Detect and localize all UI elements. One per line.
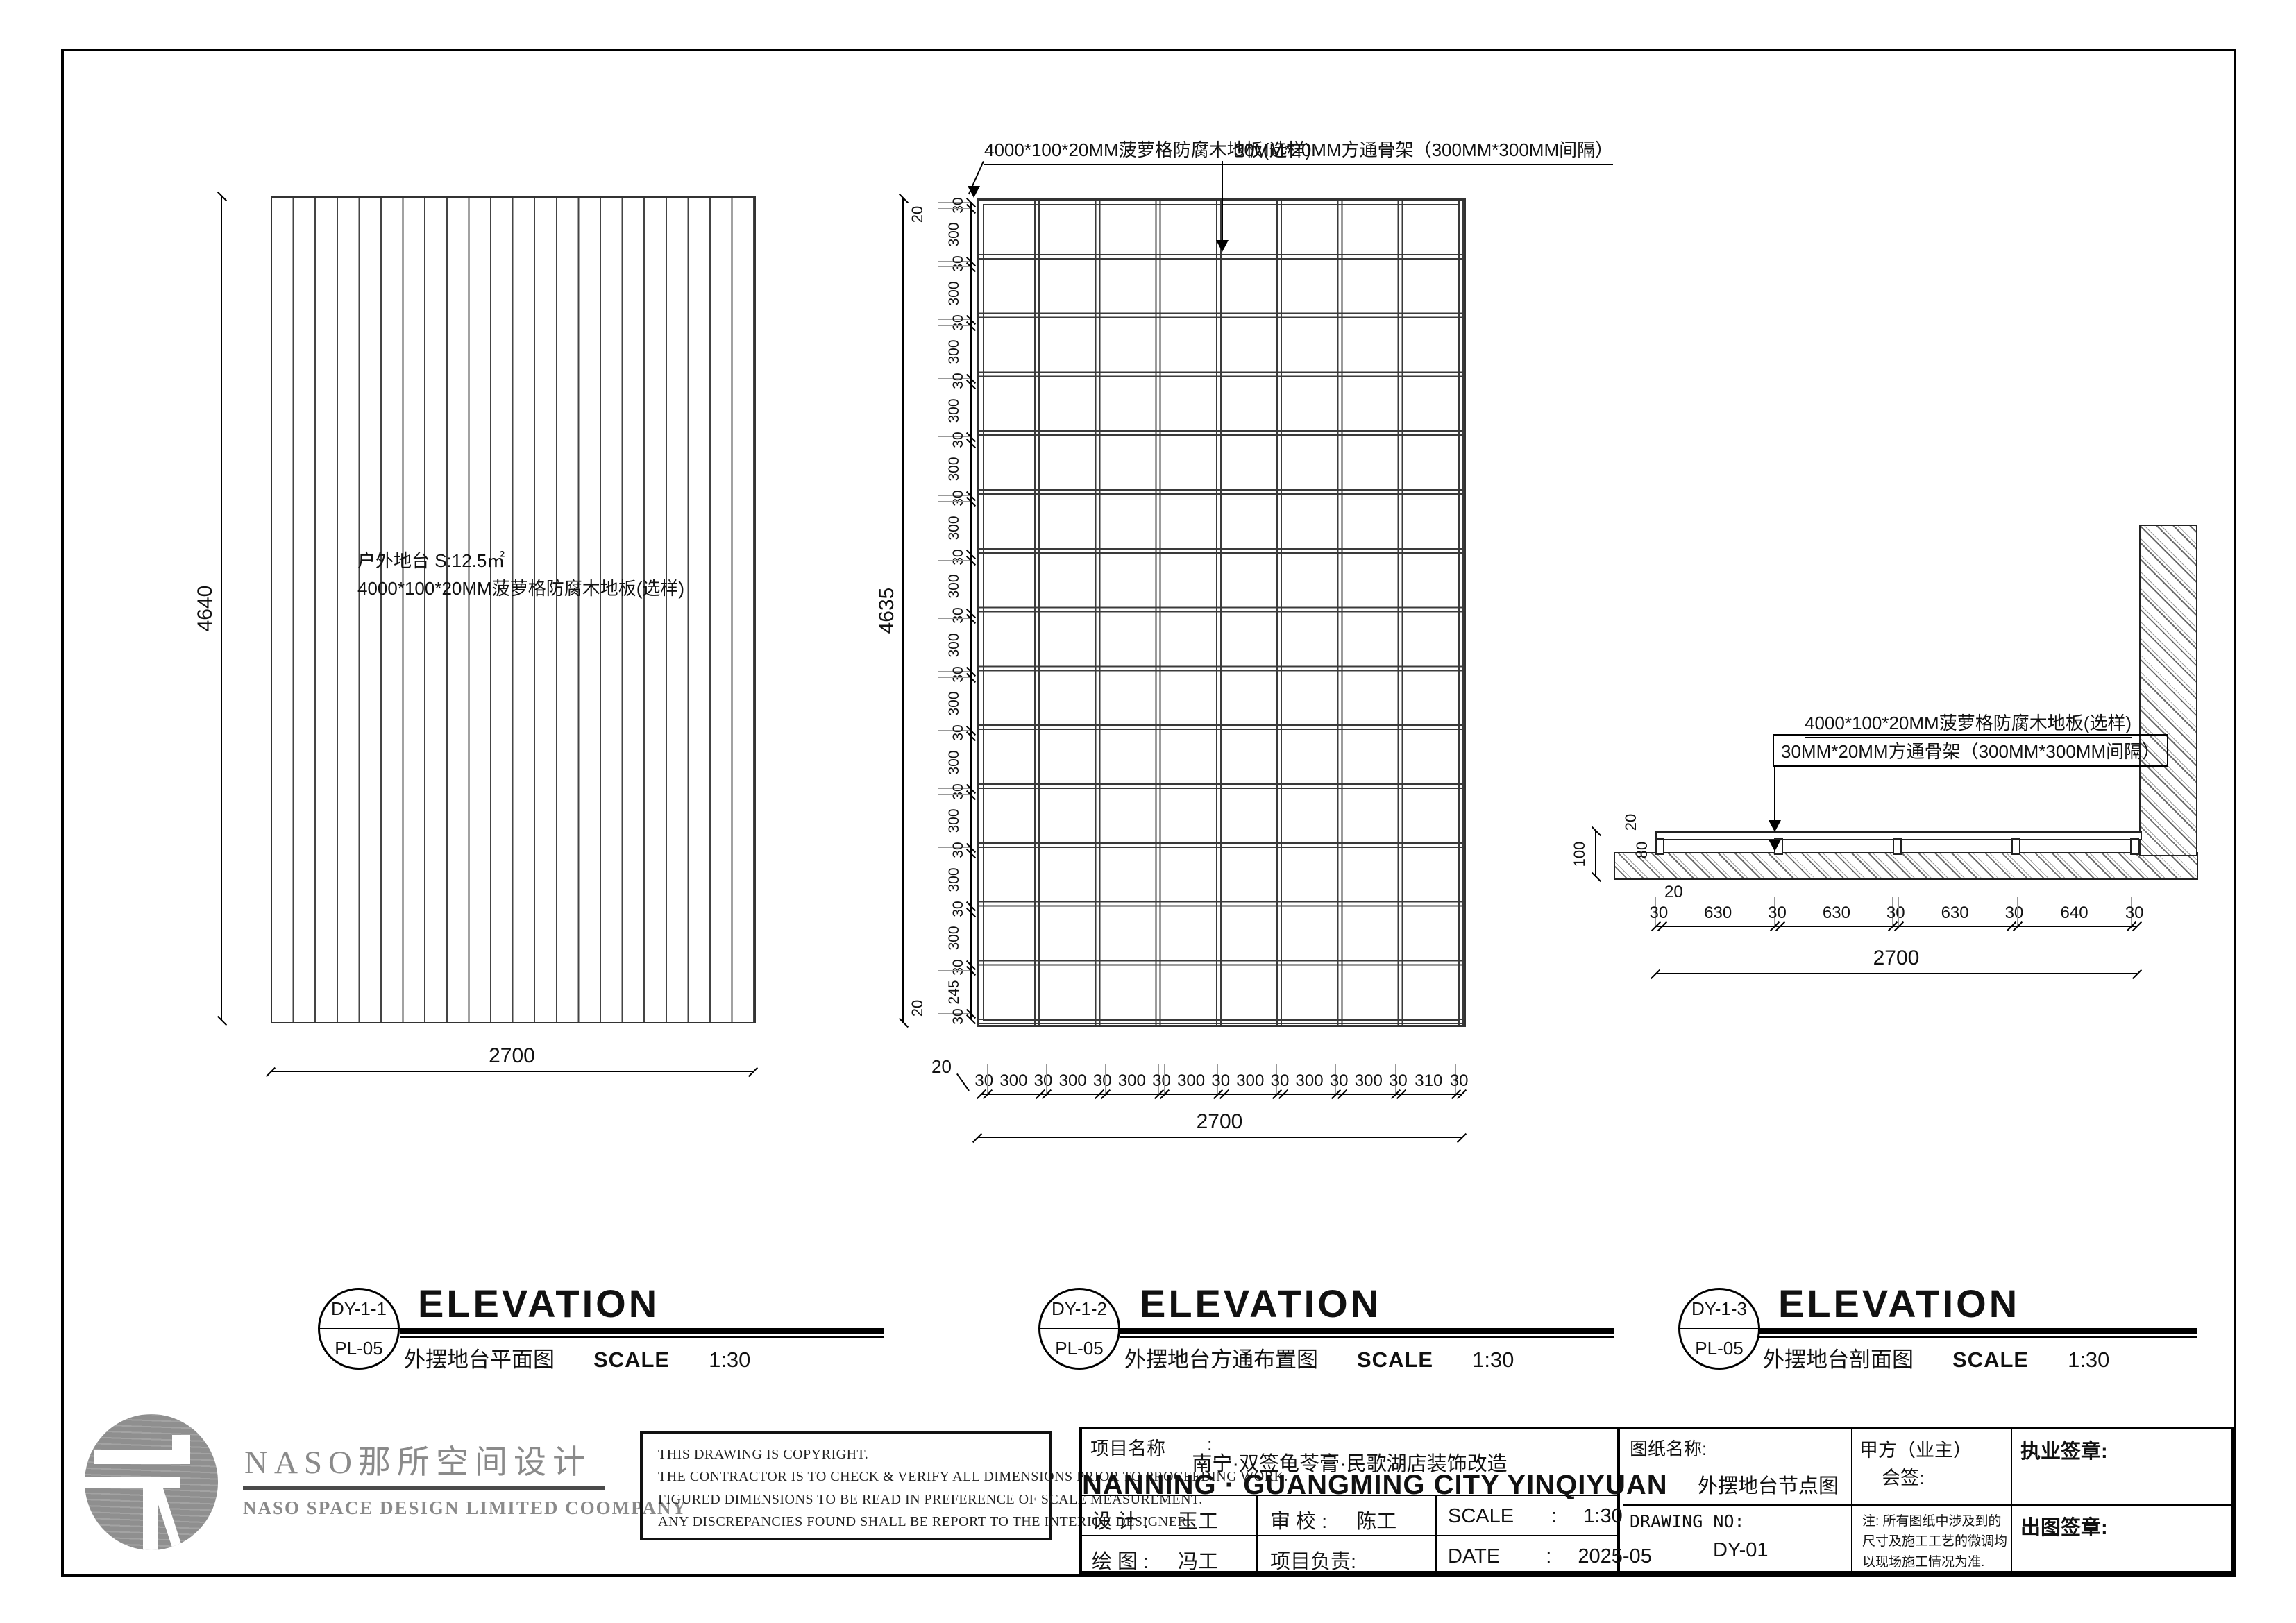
dim-segment: 30 [1276,1064,1283,1094]
dim-segment: 30 [2011,897,2017,926]
copyright-line: THIS DRAWING IS COPYRIGHT. [658,1443,1049,1465]
tube-left-dim-chain: 3030030300303003030030300303003030030300… [938,202,972,1019]
tube-width-dim-label: 2700 [1197,1110,1243,1134]
scale-label: SCALE [1448,1505,1514,1527]
date-colon: : [1546,1545,1551,1567]
sheet-title-value: 外摆地台节点图 [1698,1470,1839,1499]
view3-scale-value: 1:30 [2068,1348,2109,1373]
issue-seal-cell: 出图签章: [2012,1506,2231,1577]
dim-segment: 300 [938,501,970,554]
dim-segment: 300 [1224,1064,1277,1094]
dim-segment: 30 [2131,897,2137,926]
section-slab-hatch [1614,852,2198,880]
drawing-sheet: 户外地台 S:12.5㎡ 4000*100*20MM菠萝格防腐木地板(选样) 4… [0,0,2296,1623]
callout-frame-leader-line [1222,161,1223,241]
dim-segment: 245 [938,970,970,1013]
plan-height-dim: 4640 [221,196,222,1021]
designer-label: 设 计 : [1092,1511,1149,1533]
note-line: 注: 所有图纸中涉及到的 [1862,1511,2011,1531]
view3-title-rule2 [1759,1336,2197,1338]
tube-grid-field [977,198,1466,1027]
dim-segment: 30 [1455,1064,1462,1094]
dim-segment: 300 [938,208,970,261]
view3-title: ELEVATION [1778,1281,2020,1326]
view2-sheet-no: PL-05 [1040,1329,1118,1368]
tube-edge-left-dim: 20 [931,1056,952,1078]
view1-ref-bubble: DY-1-1 PL-05 [318,1288,400,1370]
tube-edge-top-dim: 20 [909,206,927,223]
dim-segment: 300 [938,794,970,847]
section-callout-frame: 30MM*20MM方通骨架（300MM*300MM间隔） [1773,734,2168,767]
tube-grid-inner-border [983,204,1460,1021]
dim-segment: 300 [938,325,970,378]
dim-segment: 30 [1040,1064,1046,1094]
view1-ref: DY-1-1 [320,1290,398,1329]
draftsman-label: 绘 图 : [1092,1551,1149,1573]
plan-width-dim-label: 2700 [489,1044,535,1068]
section-board-thickness-dim: 20 [1622,814,1640,831]
section-bottom-dim-chain: 3063030630306303064030 [1655,897,2137,927]
dim-segment: 300 [938,560,970,613]
view1-title: ELEVATION [418,1281,659,1326]
view2-title-rule2 [1120,1336,1614,1338]
section-tube [1655,838,1664,855]
view3-ref-bubble: DY-1-3 PL-05 [1678,1288,1760,1370]
section-wall-hatch [2139,525,2197,856]
callout-floor-arrow-icon [968,186,980,198]
plan-height-dim-label: 4640 [194,586,217,632]
drawing-no-cell: DRAWING NO: DY-01 [1623,1506,1852,1577]
dim-segment: 30 [938,613,970,619]
note-line: 以现场施工情况为准. [1862,1552,2011,1572]
scale-colon: : [1551,1505,1557,1527]
checker-label: 审 校 : [1270,1511,1327,1533]
view3-ref: DY-1-3 [1680,1290,1758,1329]
sheet-title-cell: 图纸名称: 外摆地台节点图 [1623,1429,1852,1506]
draftsman-cell: 绘 图 : 冯工 [1082,1536,1258,1577]
section-width-dim-label: 2700 [1873,946,1920,970]
copyright-notice: THIS DRAWING IS COPYRIGHT. THE CONTRACTO… [640,1431,1052,1540]
section-frame-height-dim: 80 [1633,842,1651,858]
plan-plank-field [271,196,756,1023]
client-sign-cell: 甲方（业主） 会签: [1852,1429,2012,1506]
dim-segment: 30 [938,965,970,971]
project-name-cell: 项目名称 : 南宁·双签龟苓膏·民歌湖店装饰改造 NANNING · GUANG… [1082,1429,1620,1496]
dim-segment: 30 [1395,1064,1401,1094]
tube-edge-bottom-dim: 20 [909,1000,927,1017]
section-overall-height-label: 100 [1571,842,1589,867]
view1-title-rule [400,1328,884,1334]
client-label: 甲方（业主） [1859,1435,1972,1462]
project-lead-cell: 项目负责: [1258,1536,1437,1577]
drawing-no-value: DY-01 [1713,1539,1769,1562]
dim-segment: 300 [938,266,970,319]
dim-segment: 300 [938,618,970,671]
dim-segment: 30 [1774,897,1780,926]
title-block-table: 项目名称 : 南宁·双签龟苓膏·民歌湖店装饰改造 NANNING · GUANG… [1079,1427,2234,1574]
dim-segment: 630 [1780,897,1892,926]
view3-name: 外摆地台剖面图 [1763,1342,1914,1373]
dim-segment: 300 [1342,1064,1395,1094]
view2-name: 外摆地台方通布置图 [1124,1342,1318,1373]
view2-ref: DY-1-2 [1040,1290,1118,1329]
view3-sheet-no: PL-05 [1680,1329,1758,1368]
dim-segment: 310 [1401,1064,1455,1094]
dim-segment: 30 [938,495,970,502]
dim-segment: 30 [981,1064,987,1094]
view1-sheet-no: PL-05 [320,1329,398,1368]
dim-segment: 300 [938,912,970,965]
client-countersign-label: 会签: [1882,1463,1925,1490]
callout-frame-arrow-icon [1216,240,1229,252]
view3-scale-label: SCALE [1952,1348,2029,1373]
dim-segment: 30 [938,1013,970,1019]
view2-title: ELEVATION [1140,1281,1381,1326]
dim-segment: 30 [938,378,970,384]
plan-area-note: 户外地台 S:12.5㎡ 4000*100*20MM菠萝格防腐木地板(选样) [357,547,684,603]
dim-segment: 630 [1662,897,1774,926]
brand-name-cn: NASO那所空间设计 [244,1435,591,1483]
view2-scale-label: SCALE [1357,1348,1433,1373]
dim-segment: 30 [1335,1064,1342,1094]
view3-title-rule [1759,1328,2197,1334]
view2-title-rule [1120,1328,1614,1334]
plan-note-line2: 4000*100*20MM菠萝格防腐木地板(选样) [357,575,684,602]
plan-note-line1: 户外地台 S:12.5㎡ [357,547,684,575]
tube-height-dim: 4635 [902,198,904,1023]
issue-seal-label: 出图签章: [2020,1517,2108,1539]
dim-segment: 30 [938,730,970,736]
brand-name-en: NASO SPACE DESIGN LIMITED COOMPANY [243,1497,687,1519]
checker-value: 陈工 [1356,1511,1396,1533]
note-line: 尺寸及施工工艺的微调均 [1862,1531,2011,1552]
tube-width-dim: 2700 [977,1137,1462,1138]
copyright-line: FIGURED DIMENSIONS TO BE READ IN PREFERE… [658,1488,1049,1511]
brand-divider [243,1486,605,1490]
designer-value: 玉工 [1178,1511,1218,1533]
section-callout-arrow-icon [1769,820,1781,832]
dim-segment: 300 [938,443,970,495]
scale-cell: SCALE : 1:30 [1437,1496,1620,1536]
dim-segment: 300 [938,384,970,436]
note-cell: 注: 所有图纸中涉及到的 尺寸及施工工艺的微调均 以现场施工情况为准. [1852,1506,2012,1577]
plan-width-dim: 2700 [271,1071,753,1072]
dim-segment: 300 [1283,1064,1336,1094]
checker-cell: 审 校 : 陈工 [1258,1496,1437,1536]
dim-segment: 30 [1655,897,1662,926]
view1-title-rule2 [400,1336,884,1338]
tube-bottom-dim-chain: 3030030300303003030030300303003030030310… [981,1064,1462,1095]
project-lead-label: 项目负责: [1270,1551,1356,1573]
designer-cell: 设 计 : 玉工 [1082,1496,1258,1536]
dim-segment: 300 [1164,1064,1217,1094]
section-overall-height-dim: 100 [1595,831,1596,877]
dim-segment: 30 [1217,1064,1224,1094]
callout-frame: 30MM*20MM方通骨架（300MM*300MM间隔） [1234,136,1613,165]
date-label: DATE [1448,1545,1500,1567]
dim-segment: 630 [1898,897,2011,926]
section-width-dim: 2700 [1655,973,2137,974]
license-seal-cell: 执业签章: [2012,1429,2231,1506]
section-tube [2011,838,2020,855]
copyright-line: THE CONTRACTOR IS TO CHECK & VERIFY ALL … [658,1465,1049,1488]
dim-segment: 300 [938,853,970,906]
sheet-title-label: 图纸名称: [1630,1435,1707,1461]
section-tube [1893,838,1902,855]
license-seal-label: 执业签章: [2020,1441,2108,1463]
tube-height-dim-label: 4635 [875,588,899,634]
dim-segment: 300 [1105,1064,1158,1094]
dim-segment: 30 [938,261,970,267]
view2-ref-bubble: DY-1-2 PL-05 [1038,1288,1120,1370]
copyright-line: ANY DISCREPANCIES FOUND SHALL BE REPORT … [658,1511,1049,1533]
drawing-no-label: DRAWING NO: [1630,1511,1745,1531]
draftsman-value: 冯工 [1178,1551,1218,1573]
dim-segment: 30 [938,847,970,853]
scale-value: 1:30 [1583,1505,1622,1527]
dim-segment: 300 [938,677,970,730]
naso-logo-icon [85,1414,218,1550]
dim-segment: 300 [987,1064,1040,1094]
view2-scale-value: 1:30 [1472,1348,1514,1373]
view1-name: 外摆地台平面图 [404,1342,555,1373]
section-tube [2130,838,2139,855]
view1-scale-value: 1:30 [709,1348,750,1373]
dim-segment: 30 [1892,897,1898,926]
date-cell: DATE : 2025-05 [1437,1536,1620,1577]
dim-segment: 30 [1099,1064,1105,1094]
dim-segment: 30 [1158,1064,1165,1094]
dim-segment: 300 [938,736,970,788]
section-callout-arrow2-icon [1769,840,1781,851]
view1-scale-label: SCALE [593,1348,670,1373]
dim-segment: 640 [2017,897,2132,926]
section-callout-leader-line [1774,765,1775,820]
dim-segment: 300 [1046,1064,1099,1094]
